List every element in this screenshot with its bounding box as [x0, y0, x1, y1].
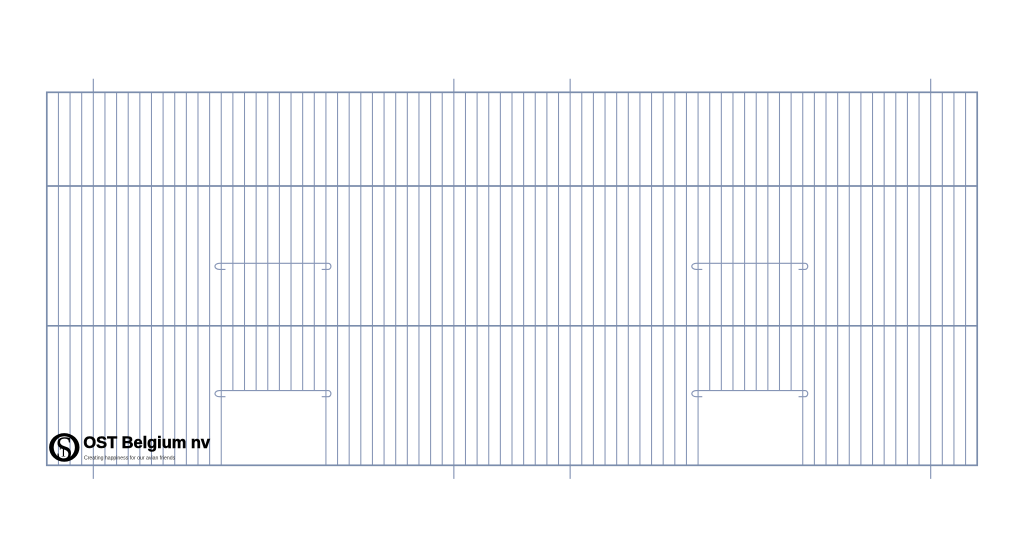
svg-text:OST Belgium nv: OST Belgium nv	[83, 434, 210, 452]
svg-text:T: T	[60, 445, 68, 459]
svg-text:Creating happiness for our avi: Creating happiness for our avian friends	[84, 455, 176, 461]
